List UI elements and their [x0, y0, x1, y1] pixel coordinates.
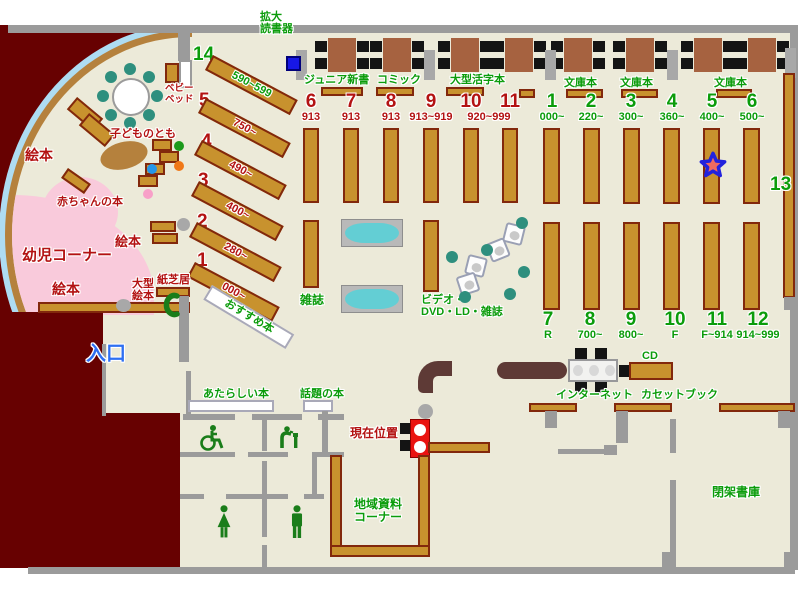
junior-books-label: ジュニア新書 — [304, 74, 369, 86]
baby-books-label: 赤ちゃんの本 — [57, 196, 123, 208]
wall — [604, 445, 617, 455]
new-books-label: あたらしい本 — [203, 388, 269, 400]
bunko-label: 文庫本 — [620, 77, 653, 89]
wall-shelf — [330, 545, 430, 557]
wall — [180, 452, 235, 457]
door-gap — [116, 299, 131, 312]
topical-books-label: 話題の本 — [300, 388, 344, 400]
wall-shelf — [428, 442, 490, 453]
wall-shelf — [418, 455, 430, 547]
partition — [667, 50, 678, 80]
bookshelf — [423, 220, 439, 292]
bookshelf — [423, 128, 439, 203]
star-icon — [699, 151, 727, 179]
wall — [778, 411, 790, 428]
bookshelf — [165, 63, 179, 83]
bookshelf — [623, 128, 640, 204]
local-materials-label: 地域資料コーナー — [354, 498, 402, 525]
chair — [143, 109, 155, 121]
kamishibai-label: 紙芝居 — [157, 274, 190, 286]
library-floor-map: 拡大読書器 ジュニア新書 コミック 大型活字本 文庫本 文庫本 文庫本 6913… — [0, 0, 800, 600]
reading-table — [505, 38, 533, 72]
chair — [516, 217, 528, 229]
phone-icon — [162, 292, 182, 318]
cassette-label: カセットブック — [641, 389, 718, 401]
reading-table — [383, 38, 411, 72]
bookshelf — [583, 128, 600, 204]
wall — [178, 28, 190, 61]
chair — [518, 266, 530, 278]
shelf-13-label: 13 — [770, 174, 791, 195]
man-icon — [289, 504, 305, 540]
chair — [459, 291, 471, 303]
reading-table — [748, 38, 776, 72]
wall — [28, 567, 795, 574]
bookshelf — [543, 128, 560, 204]
bookshelf — [543, 222, 560, 310]
bookshelf — [502, 128, 518, 203]
picture-books-label: 絵本 — [115, 235, 141, 250]
shelf-group-label: 12914~999 — [730, 311, 786, 341]
chair — [151, 90, 163, 102]
stool-gray — [177, 218, 190, 231]
magazines-label: 雑誌 — [300, 294, 324, 307]
you-are-here-marker — [400, 418, 430, 458]
bookshelf — [583, 222, 600, 310]
wall — [670, 419, 676, 453]
wall — [226, 494, 288, 499]
bunko-label: 文庫本 — [714, 77, 747, 89]
new-books-shelf — [188, 400, 274, 412]
partition — [424, 50, 435, 80]
chair — [481, 244, 493, 256]
woman-icon — [216, 504, 232, 540]
bookshelf — [463, 128, 479, 203]
magazine-rack — [341, 219, 403, 247]
magazine-shelf — [303, 220, 319, 288]
outside-area-bottom-left — [0, 413, 180, 568]
partition — [545, 50, 556, 80]
bookshelf — [383, 128, 399, 203]
bookshelf — [343, 128, 359, 203]
wall — [8, 25, 795, 33]
reading-table — [626, 38, 654, 72]
baby-bed-label: ベビーベッド — [165, 84, 194, 105]
wall-shelf — [330, 455, 342, 557]
stool-green — [174, 141, 184, 151]
bookshelf — [152, 233, 178, 244]
wall — [312, 452, 317, 497]
post — [418, 404, 433, 419]
entrance-label: 入口 — [86, 343, 126, 365]
bookshelf — [623, 222, 640, 310]
wall — [262, 461, 267, 537]
wall — [784, 552, 795, 567]
wheelchair-icon — [196, 424, 224, 452]
wall — [252, 414, 302, 420]
magnifier-device — [286, 56, 301, 71]
chair — [143, 71, 155, 83]
infant-corner-label: 幼児コーナー — [22, 248, 112, 265]
step-block — [138, 175, 158, 187]
internet-label: インターネット — [556, 389, 633, 401]
wall — [262, 545, 267, 568]
large-print-label: 大型活字本 — [450, 74, 505, 86]
chair — [105, 71, 117, 83]
step-block — [152, 139, 172, 151]
drinking-fountain-icon — [276, 424, 302, 450]
reading-table — [564, 38, 592, 72]
chair — [504, 288, 516, 300]
topical-books-shelf — [303, 400, 333, 412]
cd-shelf — [629, 362, 673, 380]
reading-table — [328, 38, 356, 72]
picture-books-label: 絵本 — [52, 282, 80, 298]
bookshelf — [303, 128, 319, 203]
wall — [248, 452, 288, 457]
wall — [662, 552, 675, 567]
bookshelf — [663, 222, 680, 310]
magazine-rack — [341, 285, 403, 313]
chair — [446, 251, 458, 263]
stool-orange — [174, 161, 184, 171]
closed-stacks-label: 閉架書庫 — [712, 486, 760, 499]
bookshelf — [743, 128, 760, 204]
wall — [616, 411, 628, 443]
stool-pink — [143, 189, 153, 199]
wall — [262, 419, 267, 451]
wall — [318, 414, 344, 420]
kodomo-no-tomo-label: 子どものとも — [110, 128, 176, 140]
current-position-label: 現在位置 — [350, 427, 398, 440]
bunko-label: 文庫本 — [564, 77, 597, 89]
reading-table — [451, 38, 479, 72]
picture-books-label: 絵本 — [25, 148, 53, 164]
magnifier-label: 拡大読書器 — [260, 11, 293, 36]
chair — [97, 90, 109, 102]
service-counter — [418, 361, 452, 393]
cd-label: CD — [642, 350, 658, 362]
chair — [124, 63, 136, 75]
service-counter — [497, 362, 567, 379]
stool-blue — [147, 164, 157, 174]
shelf-group-label: 6500~ — [724, 93, 780, 123]
large-picture-books-label: 大型絵本 — [132, 278, 154, 303]
chair — [105, 109, 117, 121]
wall — [784, 297, 796, 310]
wall — [545, 411, 557, 428]
wall — [180, 494, 204, 499]
bookshelf — [663, 128, 680, 204]
reading-table — [694, 38, 722, 72]
internet-table — [568, 359, 618, 382]
bookshelf — [743, 222, 760, 310]
wall — [183, 414, 235, 420]
comic-label: コミック — [377, 74, 421, 86]
bookshelf — [703, 222, 720, 310]
bookshelf — [150, 221, 176, 232]
